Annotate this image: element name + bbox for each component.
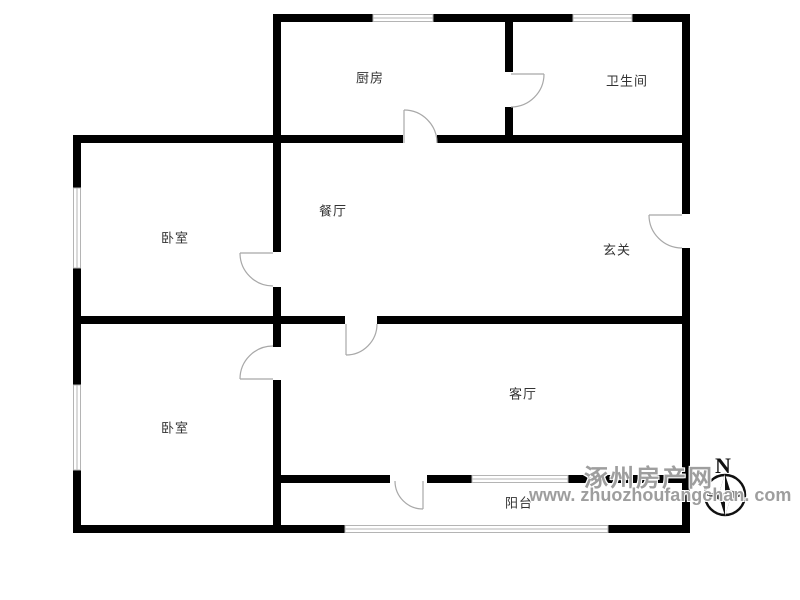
wall-center-a	[273, 14, 281, 252]
door-bedroom-upper	[240, 253, 273, 286]
wall-top-c	[632, 14, 690, 22]
wall-kb-b	[505, 107, 513, 135]
room-label-bedroom-upper: 卧室	[161, 228, 189, 247]
window-balcony-outer	[345, 526, 608, 533]
room-label-entry-hall: 玄关	[603, 240, 631, 259]
window-bedroom-upper-left	[74, 188, 81, 268]
room-label-dining-room: 餐厅	[319, 201, 347, 220]
room-label-kitchen: 厨房	[356, 68, 384, 87]
wall-top-b	[433, 14, 573, 22]
door-entrance	[649, 215, 682, 248]
wall-mid2-a	[73, 316, 345, 324]
window-bathroom-top	[573, 15, 632, 22]
window-bedroom-lower-left	[74, 385, 81, 470]
floorplan-page: 厨房 卫生间 餐厅 玄关 卧室 卧室 客厅 阳台 涿州房产网 www. zhuo…	[0, 0, 800, 600]
door-balcony	[395, 481, 423, 509]
wall-kb-a	[505, 22, 513, 72]
watermark-site-url: www. zhuozhoufangchan. com	[529, 485, 791, 506]
wall-left-b	[73, 268, 81, 385]
compass-north-label: N	[715, 453, 731, 479]
wall-left-a	[73, 135, 81, 188]
wall-mid2-b	[377, 316, 690, 324]
wall-mid1-b	[437, 135, 690, 143]
door-kitchen	[404, 110, 437, 143]
windows	[74, 15, 633, 533]
door-bathroom	[511, 74, 544, 107]
door-bedroom-lower	[240, 346, 273, 379]
room-label-living-room: 客厅	[509, 384, 537, 403]
wall-center-c	[273, 380, 281, 533]
window-balcony-inner	[472, 476, 568, 483]
walls	[73, 14, 690, 533]
window-kitchen-top	[373, 15, 433, 22]
wall-left-c	[73, 470, 81, 533]
wall-balcony-b	[427, 475, 472, 483]
wall-top-a	[273, 14, 373, 22]
wall-mid1-a	[73, 135, 403, 143]
room-label-bathroom: 卫生间	[606, 71, 648, 90]
floorplan-canvas	[0, 0, 800, 600]
room-label-bedroom-lower: 卧室	[161, 418, 189, 437]
wall-bottom-b	[608, 525, 690, 533]
wall-balcony-a	[273, 475, 390, 483]
door-living-room	[346, 324, 377, 355]
wall-right-a	[682, 14, 690, 214]
wall-bottom-a	[73, 525, 345, 533]
